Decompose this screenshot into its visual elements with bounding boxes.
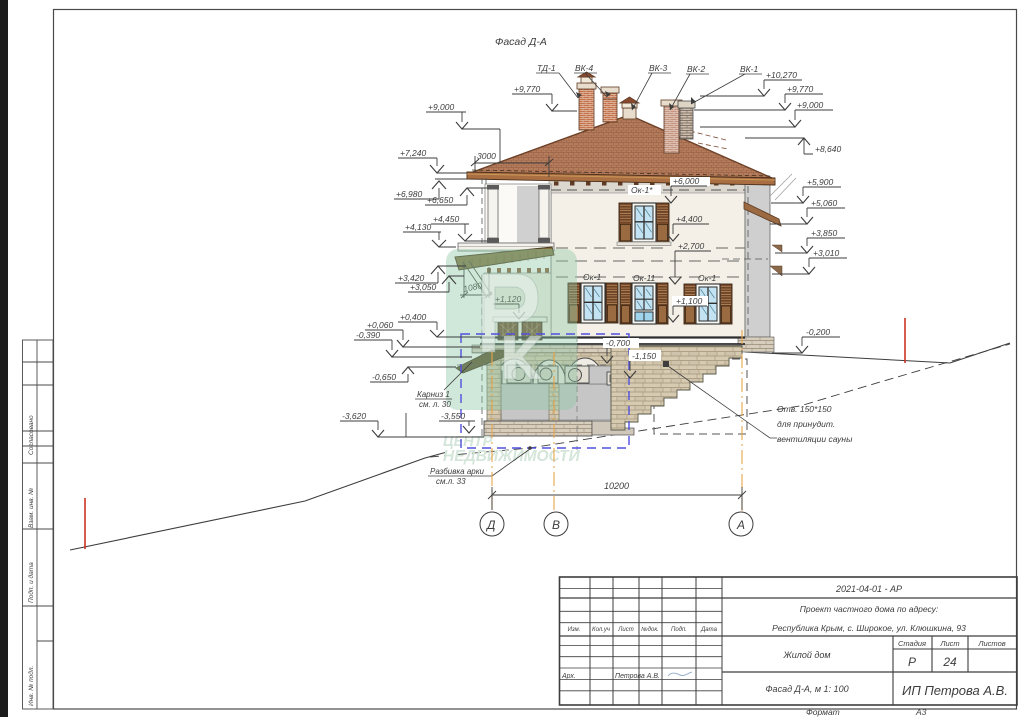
svg-text:2021-04-01 - АР: 2021-04-01 - АР <box>835 584 902 594</box>
svg-text:+6,980: +6,980 <box>396 189 423 199</box>
svg-text:3000: 3000 <box>477 151 496 161</box>
svg-text:-1,150: -1,150 <box>632 351 656 361</box>
svg-text:Ок-1*: Ок-1* <box>631 185 653 195</box>
svg-text:Согласовано: Согласовано <box>28 415 35 455</box>
svg-text:Арх.: Арх. <box>561 673 576 680</box>
svg-text:10200: 10200 <box>604 481 629 491</box>
svg-text:-3,620: -3,620 <box>342 411 366 421</box>
svg-text:А: А <box>736 518 745 532</box>
svg-text:Ок-1: Ок-1 <box>583 272 601 282</box>
svg-text:Листов: Листов <box>977 639 1005 648</box>
svg-text:см. л. 30: см. л. 30 <box>419 400 451 409</box>
svg-text:+3,010: +3,010 <box>813 248 840 258</box>
svg-text:+5,900: +5,900 <box>807 177 834 187</box>
svg-text:-0,650: -0,650 <box>372 372 396 382</box>
svg-text:24: 24 <box>942 655 957 669</box>
svg-text:Республика Крым, с. Широкое, у: Республика Крым, с. Широкое, ул. Клюшкин… <box>772 623 966 633</box>
svg-text:№док.: №док. <box>641 626 659 633</box>
svg-text:+8,640: +8,640 <box>815 144 842 154</box>
svg-text:+0,060: +0,060 <box>367 320 394 330</box>
svg-text:Изм.: Изм. <box>568 627 581 633</box>
svg-text:Петрова А.В.: Петрова А.В. <box>615 673 660 680</box>
svg-text:Разбивка арки: Разбивка арки <box>430 467 484 476</box>
svg-text:ТД-1: ТД-1 <box>537 63 556 73</box>
svg-text:А3: А3 <box>915 707 927 717</box>
svg-text:Проект частного дома по адресу: Проект частного дома по адресу: <box>800 604 939 614</box>
svg-text:Инв. № подл.: Инв. № подл. <box>27 665 35 706</box>
svg-text:Лист: Лист <box>939 639 959 648</box>
svg-text:+7,240: +7,240 <box>400 148 427 158</box>
svg-text:+1,100: +1,100 <box>676 296 703 306</box>
svg-text:Ок-11: Ок-11 <box>633 273 656 283</box>
svg-text:Карниз 1: Карниз 1 <box>417 390 450 399</box>
svg-text:+0,400: +0,400 <box>400 312 427 322</box>
svg-text:Отв. 150*150: Отв. 150*150 <box>777 404 832 414</box>
svg-text:+9,000: +9,000 <box>428 102 455 112</box>
svg-text:Ок-1: Ок-1 <box>698 273 716 283</box>
svg-text:Р: Р <box>908 655 916 669</box>
svg-text:ВК-2: ВК-2 <box>687 64 706 74</box>
svg-text:+4,450: +4,450 <box>433 214 460 224</box>
svg-text:+6,650: +6,650 <box>427 195 454 205</box>
svg-text:-0,200: -0,200 <box>806 327 830 337</box>
svg-text:Лист: Лист <box>617 627 633 633</box>
svg-text:ВК-3: ВК-3 <box>649 63 668 73</box>
svg-text:+4,130: +4,130 <box>405 222 432 232</box>
svg-text:ВК-1: ВК-1 <box>740 64 759 74</box>
svg-text:+9,000: +9,000 <box>797 100 824 110</box>
svg-text:-0,700: -0,700 <box>606 338 630 348</box>
svg-text:НЕДВИЖИМОСТИ: НЕДВИЖИМОСТИ <box>443 448 581 465</box>
svg-text:Подп. и дата: Подп. и дата <box>27 562 35 603</box>
svg-text:Кол.уч: Кол.уч <box>592 627 610 633</box>
svg-text:В: В <box>552 518 560 532</box>
svg-text:+6,000: +6,000 <box>673 176 700 186</box>
svg-text:ВК-4: ВК-4 <box>575 63 594 73</box>
svg-text:Взам. инв. №: Взам. инв. № <box>28 488 35 528</box>
svg-text:Фасад Д-А, м 1: 100: Фасад Д-А, м 1: 100 <box>765 684 848 694</box>
svg-text:вентиляции сауны: вентиляции сауны <box>777 434 853 444</box>
svg-text:-0,390: -0,390 <box>356 330 380 340</box>
svg-text:Фасад Д-А: Фасад Д-А <box>495 36 547 48</box>
svg-text:+9,770: +9,770 <box>514 84 541 94</box>
svg-text:+2,700: +2,700 <box>678 241 705 251</box>
svg-text:ИП Петрова А.В.: ИП Петрова А.В. <box>902 683 1008 698</box>
svg-text:для принудит.: для принудит. <box>777 419 835 429</box>
svg-text:-3,550: -3,550 <box>441 411 465 421</box>
svg-text:Стадия: Стадия <box>898 639 926 648</box>
svg-text:+9,770: +9,770 <box>787 84 814 94</box>
svg-text:Подп.: Подп. <box>671 627 687 633</box>
svg-text:см.л. 33: см.л. 33 <box>436 477 466 486</box>
svg-text:+10,270: +10,270 <box>766 70 797 80</box>
svg-text:Формат: Формат <box>806 707 840 717</box>
svg-text:Дата: Дата <box>700 627 717 633</box>
svg-text:+5,060: +5,060 <box>811 198 838 208</box>
svg-text:Д: Д <box>485 518 496 532</box>
svg-text:Жилой дом: Жилой дом <box>783 650 831 660</box>
svg-text:+3,850: +3,850 <box>811 228 838 238</box>
svg-text:+3,050: +3,050 <box>410 282 437 292</box>
svg-text:+4,400: +4,400 <box>676 214 703 224</box>
